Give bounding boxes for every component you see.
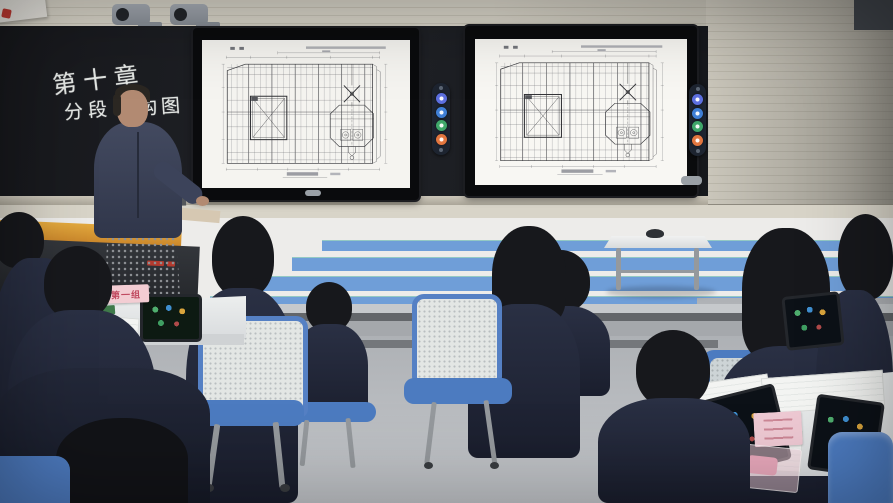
classroom-photo: 第十章 分段 构图: [0, 0, 893, 503]
student-hair: [44, 246, 112, 320]
chair-back[interactable]: [412, 294, 502, 386]
chair-caster: [424, 462, 433, 469]
screen-right[interactable]: [465, 26, 697, 196]
screen-toolbar: [689, 84, 706, 156]
student-hair: [838, 214, 893, 300]
screen-left-logo-button[interactable]: [305, 190, 321, 196]
tool-lightblue-button[interactable]: [436, 107, 447, 118]
table-object: [646, 229, 664, 238]
chair-caster: [490, 462, 499, 469]
deck-plan-drawing-left: [202, 40, 410, 188]
tool-lightblue-button[interactable]: [692, 108, 703, 119]
bag-contents: [746, 455, 778, 476]
wall-right-shadow: [706, 0, 893, 206]
chair-seat[interactable]: [404, 378, 512, 404]
tablet-screen[interactable]: [140, 294, 202, 342]
deck-plan-drawing-right: [475, 39, 687, 185]
chalk-text-line2a: 分段: [63, 94, 113, 125]
screen-toolbar: [432, 83, 450, 155]
teacher-zipper: [137, 132, 139, 218]
slide-left: [202, 40, 410, 188]
chair-caster: [280, 484, 290, 492]
tool-blue-button[interactable]: [692, 94, 703, 105]
slide-right: [475, 39, 687, 185]
group-card-label: 第一组: [111, 287, 141, 301]
student-hair: [636, 330, 710, 408]
teacher-hair-side: [113, 94, 121, 116]
tool-orange-button[interactable]: [436, 134, 447, 145]
name-card: [753, 411, 803, 447]
tool-orange-button[interactable]: [692, 135, 703, 146]
tool-green-button[interactable]: [692, 121, 703, 132]
table-leg: [694, 248, 699, 290]
screen-left[interactable]: [193, 28, 419, 200]
table-shadow: [606, 286, 716, 298]
tool-blue-button[interactable]: [436, 93, 447, 104]
student-body: [598, 398, 750, 503]
dark-corner-panel: [854, 0, 893, 30]
teacher-hand: [196, 196, 209, 206]
screen-right-home-button[interactable]: [681, 176, 702, 185]
teacher-head: [117, 90, 148, 127]
table-crossbar: [617, 270, 699, 273]
tool-green-button[interactable]: [436, 120, 447, 131]
table-leg: [616, 248, 621, 290]
chair-corner-left[interactable]: [0, 456, 70, 503]
tablet-held[interactable]: [781, 291, 844, 351]
student-hair-ponytail: [212, 216, 274, 298]
student-hair: [56, 418, 188, 503]
chair-corner[interactable]: [828, 432, 893, 503]
red-logo: [1, 8, 12, 19]
